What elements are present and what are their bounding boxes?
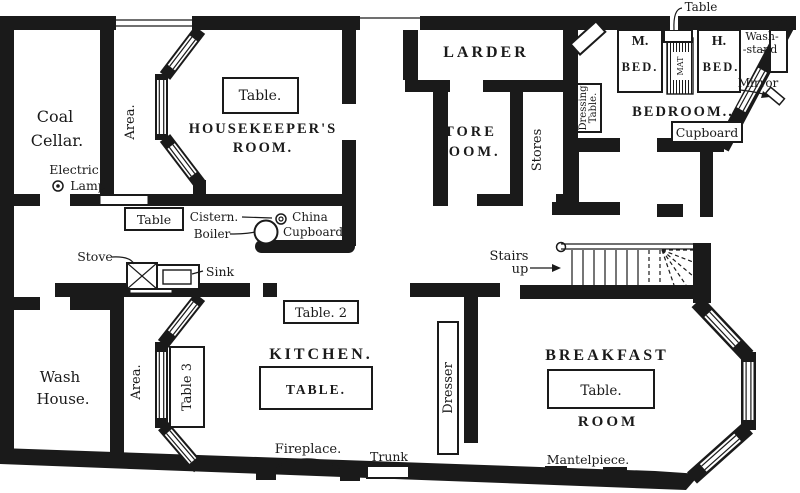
label-fireplace: Fireplace. (275, 442, 341, 457)
label-table-3: Table 3 (180, 363, 195, 411)
label-mat: MAT (676, 56, 685, 76)
label-mantelpiece: Mantelpiece. (547, 452, 630, 467)
label-wash-stand-2: -stand (743, 43, 777, 56)
room-label-housekeepers: HOUSEKEEPER'S (189, 121, 337, 137)
stairs-up-arrow (530, 264, 561, 272)
room-label-store: STORE (433, 124, 497, 140)
electric-lamp-icon (53, 181, 63, 191)
label-area-upper: Area. (123, 104, 138, 140)
room-label-bedroom: BEDROOM.. (632, 104, 734, 120)
trunk (367, 466, 409, 478)
room-label-breakfast: BREAKFAST (545, 347, 669, 364)
label-stores: Stores (530, 129, 545, 172)
label-boiler: Boiler (194, 227, 231, 241)
label-cupboard: Cupboard (676, 125, 739, 140)
label-hk-table: Table. (239, 88, 282, 104)
room-label-larder: LARDER (443, 44, 529, 61)
room-label-coal-cellar-2: Cellar. (31, 131, 83, 150)
label-kitchen-table: TABLE. (286, 382, 346, 397)
stove-symbol (127, 263, 157, 289)
label-cistern: Cistern. (190, 210, 238, 224)
label-dressing-2: Table. (588, 93, 599, 124)
sink-symbol (157, 265, 199, 289)
label-sink: Sink (206, 264, 235, 279)
label-h-bed: H. (712, 34, 726, 49)
room-label-wash-house: Wash (40, 368, 81, 386)
cistern-symbol (276, 214, 286, 224)
label-electric: Electric (49, 162, 99, 177)
staircase (557, 243, 694, 286)
bedroom-wall-table (664, 30, 692, 42)
room-label-wash-house-2: House. (36, 390, 89, 408)
floor-plan-drawing: Coal Cellar. Electric Lamp Area. Table. … (0, 0, 800, 493)
label-area-lower: Area. (129, 364, 144, 400)
room-label-breakfast-2: ROOM (578, 414, 638, 430)
label-china-2: Cupboard (283, 225, 343, 239)
label-trunk: Trunk (370, 449, 408, 464)
boiler-symbol (255, 221, 278, 244)
label-china: China (292, 210, 328, 224)
label-table-2: Table. 2 (295, 306, 347, 321)
label-bedroom-table: Table (685, 0, 718, 14)
room-label-kitchen: KITCHEN. (269, 346, 373, 363)
label-stove: Stove (77, 249, 113, 264)
room-label-store-2: ROOM. (435, 144, 500, 160)
label-dresser: Dresser (441, 361, 456, 413)
label-h-bed-2: BED. (703, 60, 740, 74)
label-m-bed-2: BED. (622, 60, 659, 74)
room-label-housekeepers-2: ROOM. (233, 140, 293, 156)
label-mirror: Mirror (738, 76, 779, 90)
label-stairs-up: up (512, 262, 529, 277)
label-wash-stand: Wash- (745, 30, 779, 43)
label-breakfast-table: Table. (580, 383, 621, 399)
floor-plan-page: Coal Cellar. Electric Lamp Area. Table. … (0, 0, 800, 493)
room-label-coal-cellar: Coal (37, 107, 74, 126)
label-mid-table: Table (137, 212, 171, 227)
stair-treads (572, 250, 693, 285)
label-lamp: Lamp (70, 178, 106, 193)
label-m-bed: M. (632, 34, 649, 49)
